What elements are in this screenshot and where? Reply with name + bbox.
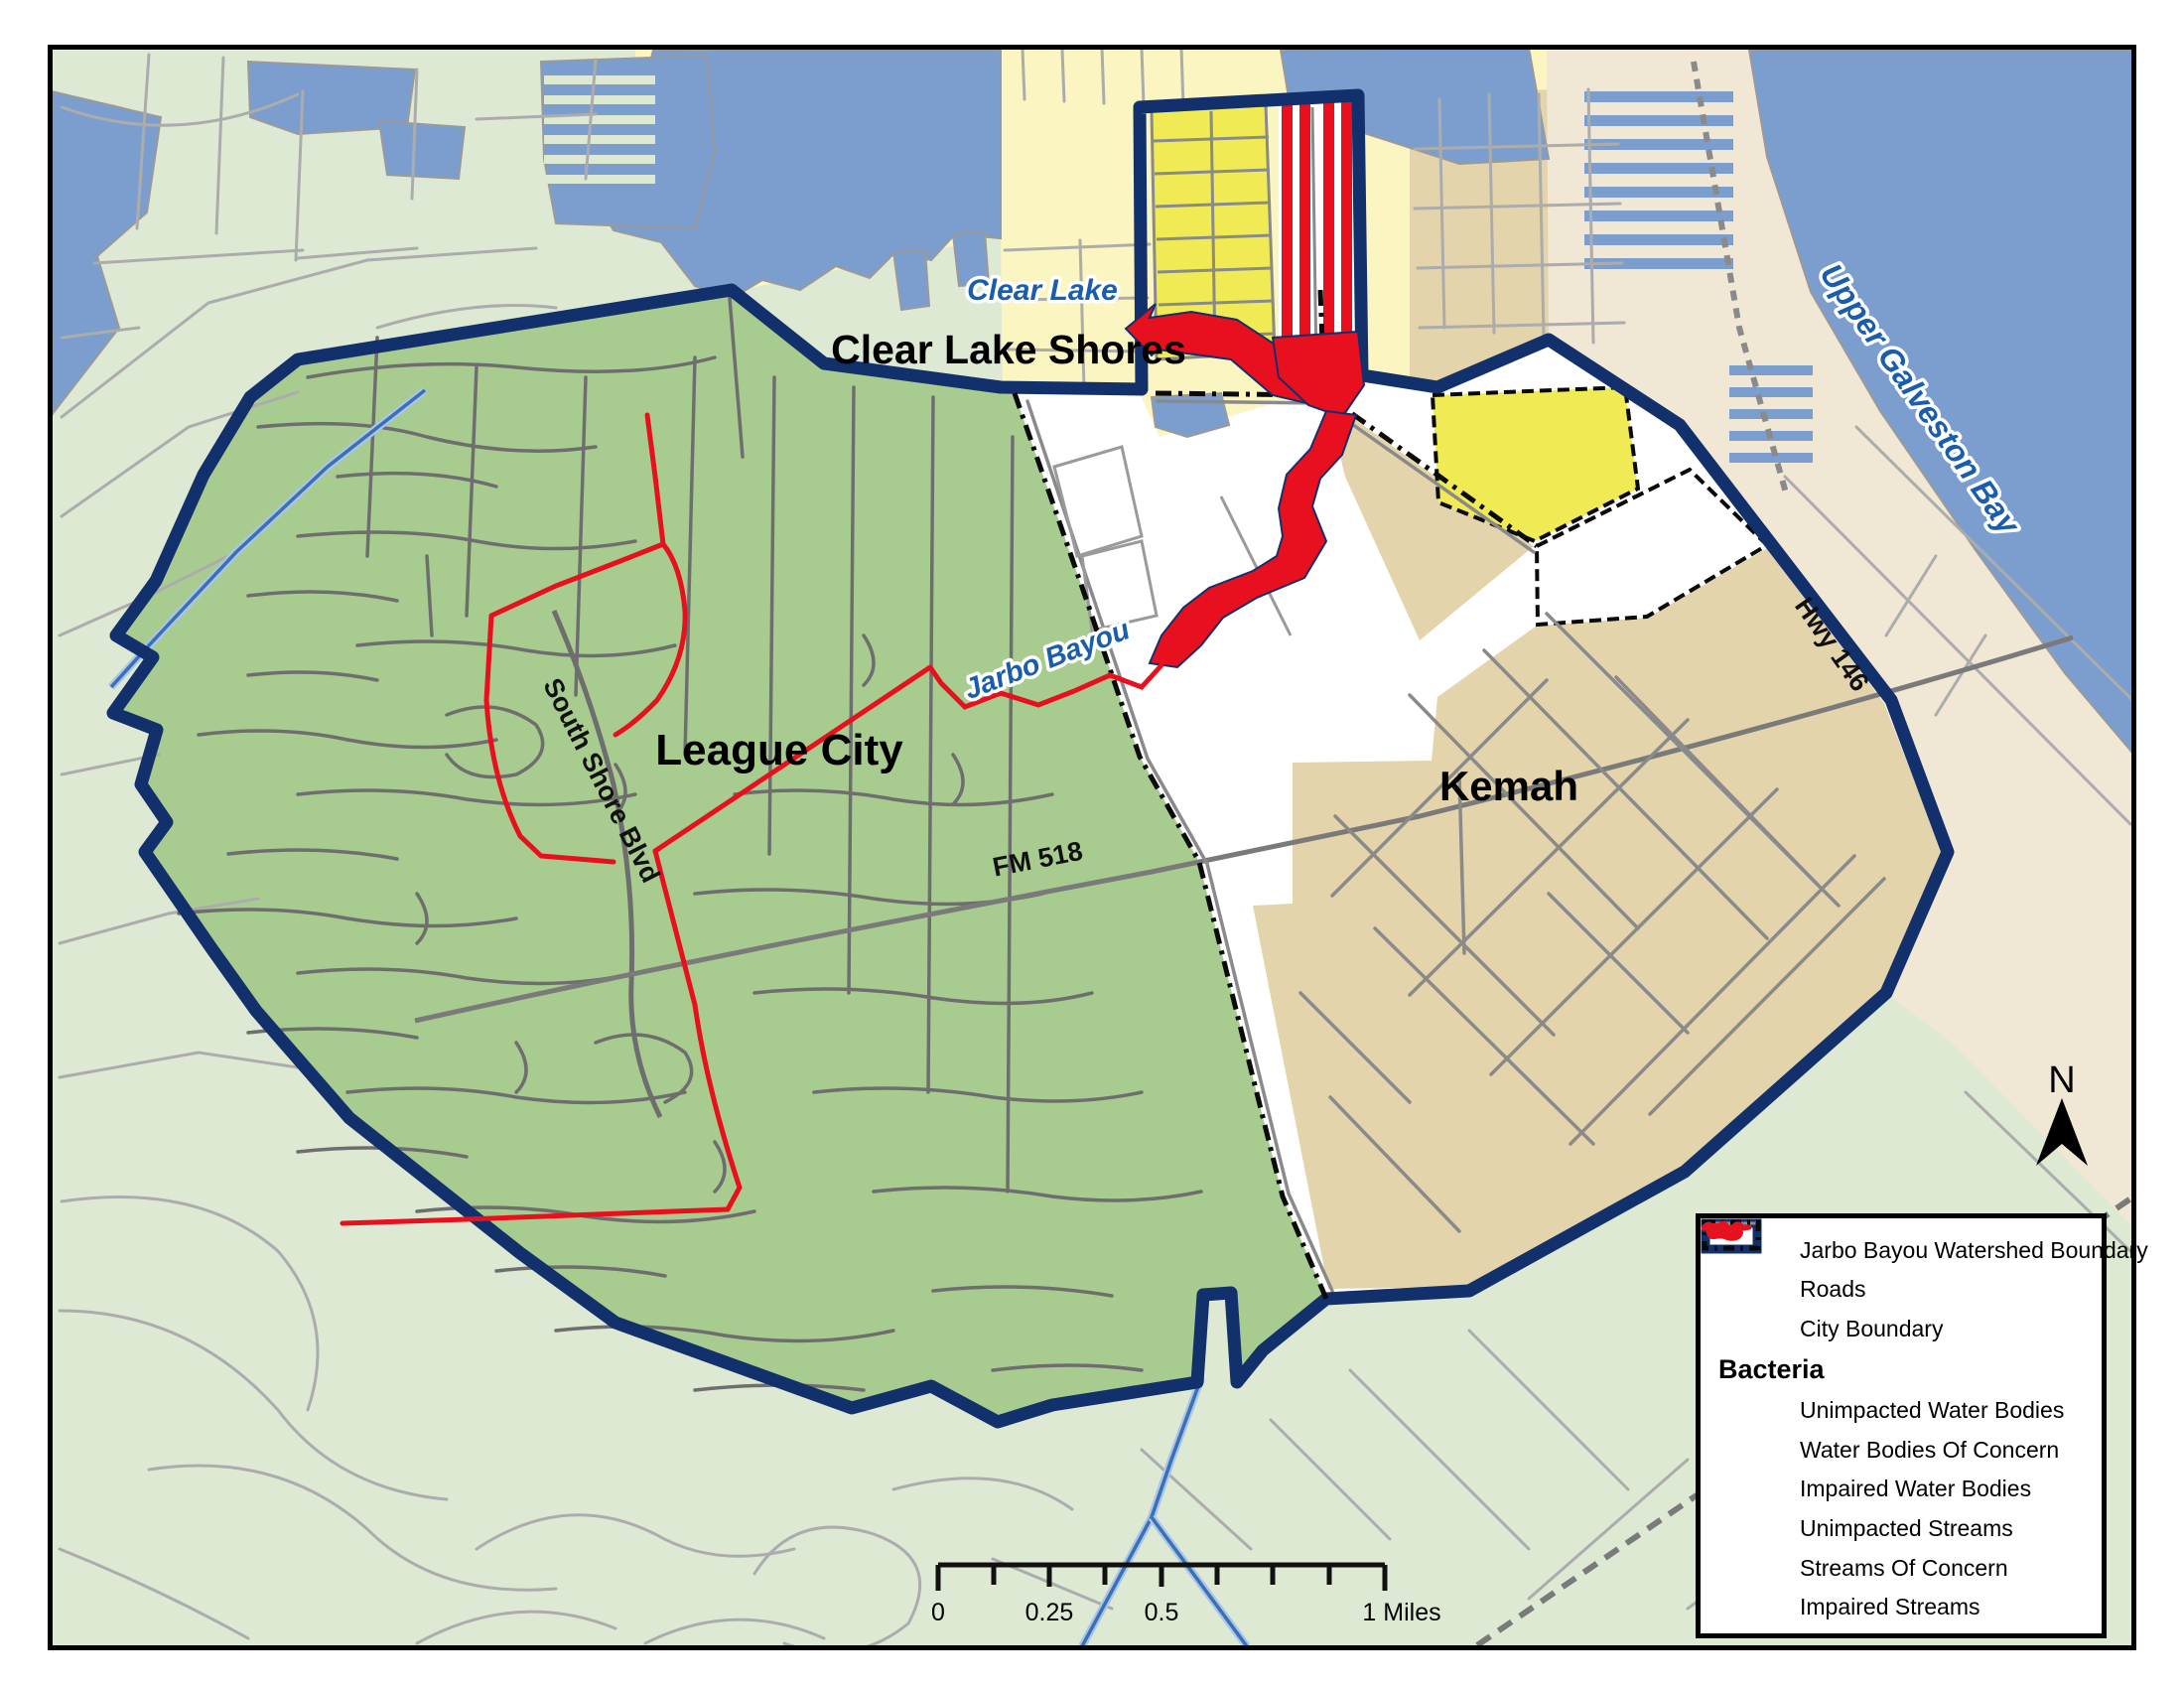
- map-page: Clear Lake Clear Lake Shores League City…: [0, 0, 2184, 1688]
- legend-item: Streams Of Concern: [1718, 1552, 2084, 1584]
- svg-text:0.5: 0.5: [1145, 1599, 1179, 1626]
- legend-item: Water Bodies Of Concern: [1718, 1434, 2084, 1466]
- legend-item: Impaired Water Bodies: [1718, 1474, 2084, 1505]
- nw-lake: [379, 121, 465, 179]
- north-label: N: [2048, 1059, 2075, 1101]
- league-city-label: League City: [655, 726, 903, 774]
- legend-item: Roads: [1718, 1274, 2084, 1306]
- legend-item: Jarbo Bayou Watershed Boundary: [1718, 1234, 2084, 1266]
- svg-text:0.25: 0.25: [1025, 1599, 1074, 1626]
- clear-lake-shores-label: Clear Lake Shores: [831, 327, 1186, 372]
- legend-section-bacteria: Bacteria: [1718, 1354, 2084, 1385]
- kemah-label: Kemah: [1439, 763, 1578, 809]
- svg-text:1 Miles: 1 Miles: [1362, 1599, 1440, 1626]
- legend-item: City Boundary: [1718, 1313, 2084, 1344]
- legend-item: Unimpacted Water Bodies: [1718, 1395, 2084, 1427]
- svg-text:0: 0: [931, 1599, 945, 1626]
- clear-lake-label: Clear Lake: [967, 274, 1118, 307]
- legend-item: Impaired Streams: [1718, 1592, 2084, 1623]
- map-legend: Jarbo Bayou Watershed Boundary Roads Cit…: [1696, 1213, 2107, 1638]
- legend-item: Unimpacted Streams: [1718, 1513, 2084, 1545]
